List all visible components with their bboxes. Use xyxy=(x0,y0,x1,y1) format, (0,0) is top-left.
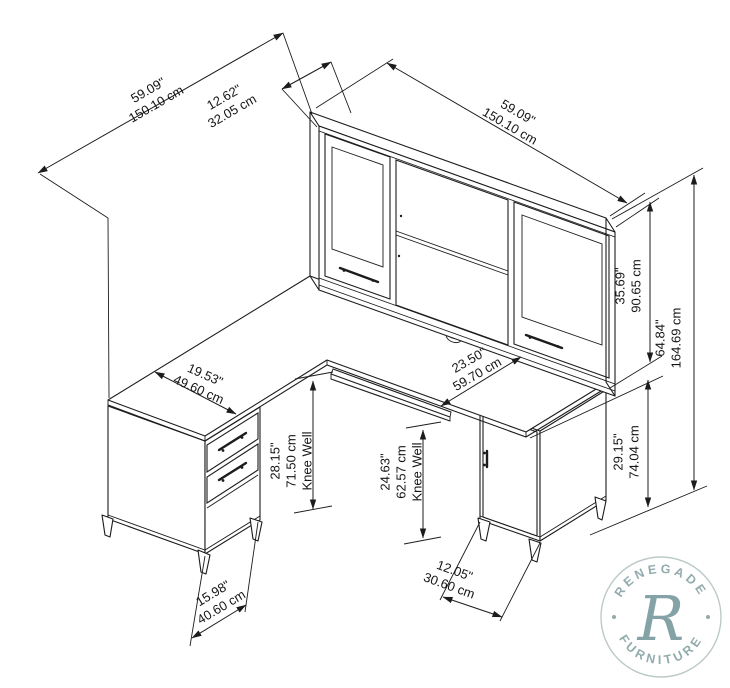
cabinet-handle-screw-top xyxy=(483,452,486,455)
drawer-1-screw-right xyxy=(241,436,244,439)
drawer-2-screw-left xyxy=(222,479,225,482)
dim-label-cabinet-width: 12.05" 30.60 cm xyxy=(422,554,483,601)
hutch-right-handle-screw-a xyxy=(529,336,532,339)
drawer-1-screw-left xyxy=(222,449,225,452)
watermark-monogram: R xyxy=(637,582,685,655)
dim-knee-right-in: 24.63" xyxy=(378,453,393,491)
dim-knee-left-note: Knee Well xyxy=(300,431,315,490)
desk-drawing-svg: RENEGADE FURNITURE R xyxy=(0,0,730,688)
dim-line-cabinet-width xyxy=(443,597,502,617)
dimension-diagram: RENEGADE FURNITURE R xyxy=(0,0,730,688)
dim-total-height-cm: 164.69 cm xyxy=(669,308,684,369)
dim-label-knee-well-left: 28.15" 71.50 cm Knee Well xyxy=(268,431,315,490)
hutch-left-handle-screw-b xyxy=(372,279,375,282)
hutch-right-handle-screw-b xyxy=(557,345,560,348)
dim-label-return-length: 59.09" 150.10 cm xyxy=(118,68,186,125)
dim-label-knee-well-right: 24.63" 62.57 cm Knee Well xyxy=(378,442,425,501)
dim-label-hutch-width: 59.09" 150.10 cm xyxy=(480,90,548,147)
dim-knee-right-note: Knee Well xyxy=(410,442,425,501)
dim-desk-height-in: 29.15" xyxy=(611,433,626,471)
drawer-2-screw-right xyxy=(241,466,244,469)
cabinet-foot-left xyxy=(478,518,490,541)
watermark-dot-right xyxy=(706,615,710,619)
cabinet-foot-back xyxy=(595,497,606,520)
pedestal-foot-left xyxy=(102,515,113,537)
hutch-left-handle-screw-a xyxy=(343,269,346,272)
ext-total-height-top xyxy=(612,168,703,219)
cabinet-foot-right xyxy=(529,539,541,562)
dim-line-hutch-depth xyxy=(282,62,331,89)
dim-label-hutch-height: 35.69" 90.65 cm xyxy=(613,259,644,312)
dim-desk-height-cm: 74.04 cm xyxy=(627,425,642,478)
dim-total-height-in: 64.84" xyxy=(653,319,668,357)
dim-knee-left-cm: 71.50 cm xyxy=(284,434,299,487)
hutch-shelf-pin-b xyxy=(398,255,400,257)
dim-hutch-height-cm: 90.65 cm xyxy=(629,259,644,312)
cabinet-handle-screw-bottom xyxy=(483,464,486,467)
dim-hutch-height-in: 35.69" xyxy=(613,267,628,305)
hutch-shelf-pin-a xyxy=(400,215,402,217)
left-pedestal xyxy=(102,406,262,574)
watermark-dot-left xyxy=(612,615,616,619)
dim-knee-left-in: 28.15" xyxy=(268,442,283,480)
dim-knee-right-cm: 62.57 cm xyxy=(394,445,409,498)
dim-label-desk-height: 29.15" 74.04 cm xyxy=(611,425,642,478)
watermark: RENEGADE FURNITURE R xyxy=(601,557,721,677)
dim-label-pedestal-width: 15.98" 40.60 cm xyxy=(186,573,248,627)
dim-label-hutch-depth: 12.62" 32.05 cm xyxy=(197,77,259,131)
